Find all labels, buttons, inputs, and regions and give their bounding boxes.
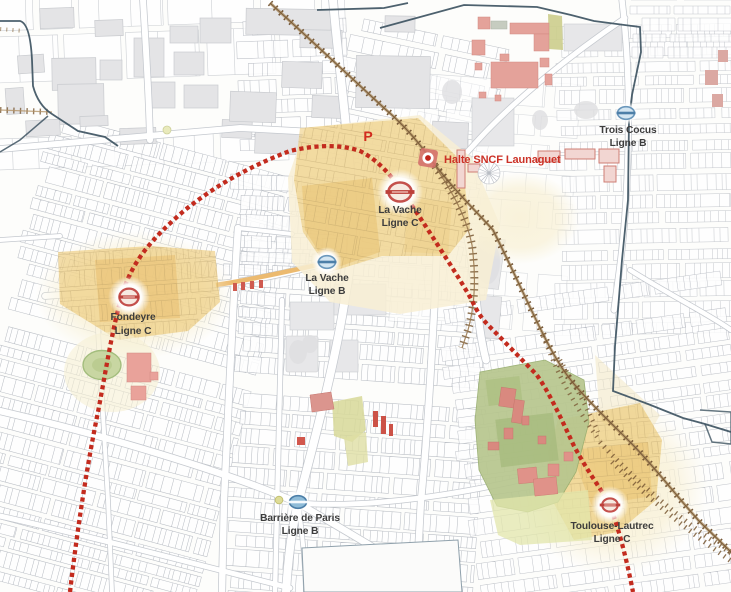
svg-text:Halte SNCF Launaguet: Halte SNCF Launaguet: [444, 154, 561, 166]
svg-text:La Vache: La Vache: [305, 273, 349, 284]
svg-text:Trois Cocus: Trois Cocus: [599, 125, 657, 136]
svg-text:Ligne B: Ligne B: [282, 526, 319, 537]
svg-text:Ligne C: Ligne C: [115, 326, 152, 337]
svg-text:Fondeyre: Fondeyre: [110, 312, 155, 323]
svg-text:Barrière de Paris: Barrière de Paris: [260, 513, 340, 524]
svg-text:La Vache: La Vache: [378, 205, 422, 216]
svg-text:Ligne C: Ligne C: [594, 534, 631, 545]
svg-text:P: P: [363, 128, 372, 144]
svg-text:Ligne B: Ligne B: [309, 286, 346, 297]
svg-text:Toulouse-Lautrec: Toulouse-Lautrec: [570, 521, 654, 532]
svg-text:Ligne C: Ligne C: [382, 218, 419, 229]
svg-text:Ligne B: Ligne B: [610, 138, 647, 149]
